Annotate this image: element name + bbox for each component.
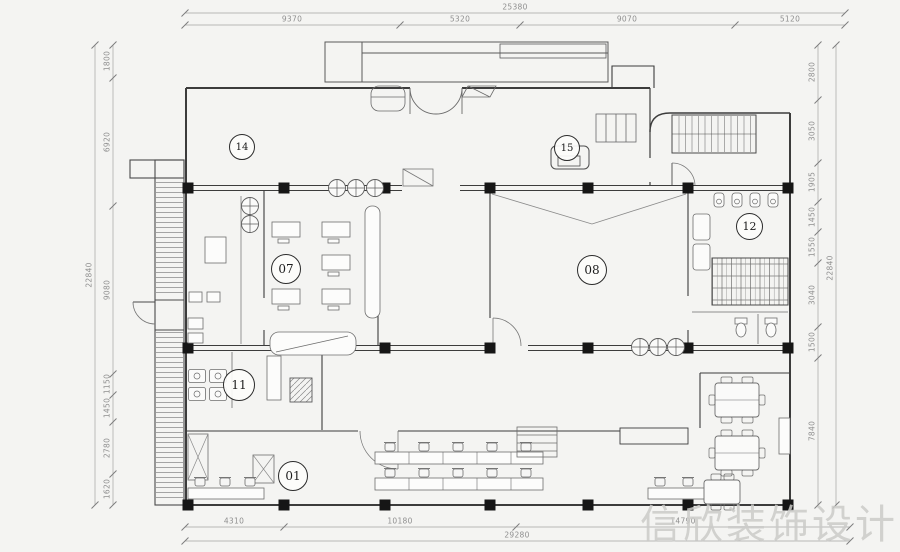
dim-right-seg-1: 2800: [808, 62, 817, 82]
floor-plan-page: 25380 9370 5320 9070 5120 4310 10180 147…: [0, 0, 900, 552]
dim-top-seg-1: 9370: [282, 15, 302, 24]
dim-right-seg-8: 7840: [808, 421, 817, 441]
pipe-circle-symbols: [242, 180, 685, 356]
dim-right-seg-5: 1550: [808, 237, 817, 257]
dim-left-seg-4: 1150: [103, 374, 112, 394]
dim-left-seg-5: 1450: [103, 398, 112, 418]
watermark-text: 信欣装饰设计: [640, 492, 898, 550]
dim-top-seg-3: 9070: [617, 15, 637, 24]
room08-diagonals: [492, 194, 686, 224]
dim-right-seg-6: 3040: [808, 285, 817, 305]
dim-bottom-seg-1: 4310: [224, 517, 244, 526]
room-label-01: 01: [278, 461, 308, 491]
dim-right-seg-2: 3050: [808, 121, 817, 141]
dim-left-total: 22840: [85, 262, 94, 287]
dim-right-total: 22840: [826, 255, 835, 280]
room-label-11: 11: [223, 369, 255, 401]
dim-top-seg-2: 5320: [450, 15, 470, 24]
left-exterior-stair: [130, 160, 184, 505]
room-label-08: 08: [577, 255, 607, 285]
room-label-12: 12: [736, 213, 763, 240]
room-label-07: 07: [271, 254, 301, 284]
dim-right-seg-4: 1450: [808, 207, 817, 227]
dim-top-total: 25380: [502, 3, 527, 12]
left-room-fixtures: [188, 196, 241, 344]
entrance-double-door: [410, 88, 462, 114]
entrance-sidelight: [371, 86, 496, 111]
dim-bottom-total: 29280: [504, 531, 529, 540]
annex-stair: [672, 115, 756, 186]
room-label-14: 14: [229, 134, 255, 160]
dining-area: [704, 377, 790, 510]
dim-left-seg-6: 2780: [103, 438, 112, 458]
floor-plan-drawing: [0, 0, 900, 552]
dim-left-seg-2: 6920: [103, 132, 112, 152]
room-label-15: 15: [554, 135, 580, 161]
dim-top-seg-4: 5120: [780, 15, 800, 24]
dim-right-seg-3: 1905: [808, 172, 817, 192]
dim-left-seg-1: 1800: [103, 51, 112, 71]
interior-doors: [360, 169, 521, 469]
dim-right-seg-7: 1500: [808, 332, 817, 352]
entrance-canopy: [325, 42, 608, 82]
dim-bottom-seg-2: 10180: [387, 517, 412, 526]
dim-left-seg-7: 1620: [103, 479, 112, 499]
dim-left-seg-3: 9080: [103, 280, 112, 300]
lobby-elevator: [596, 114, 636, 142]
